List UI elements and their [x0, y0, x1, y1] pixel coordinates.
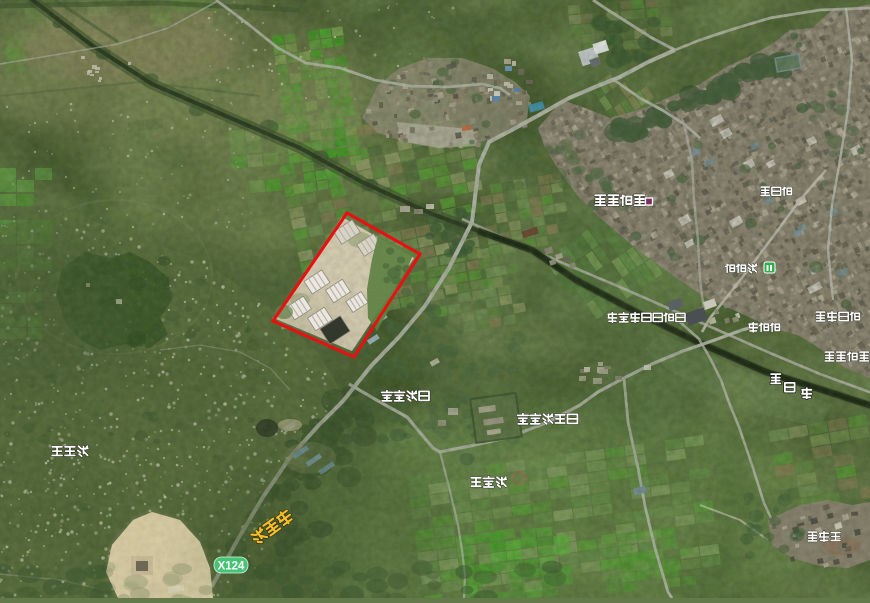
svg-text:X124: X124 [218, 561, 245, 573]
